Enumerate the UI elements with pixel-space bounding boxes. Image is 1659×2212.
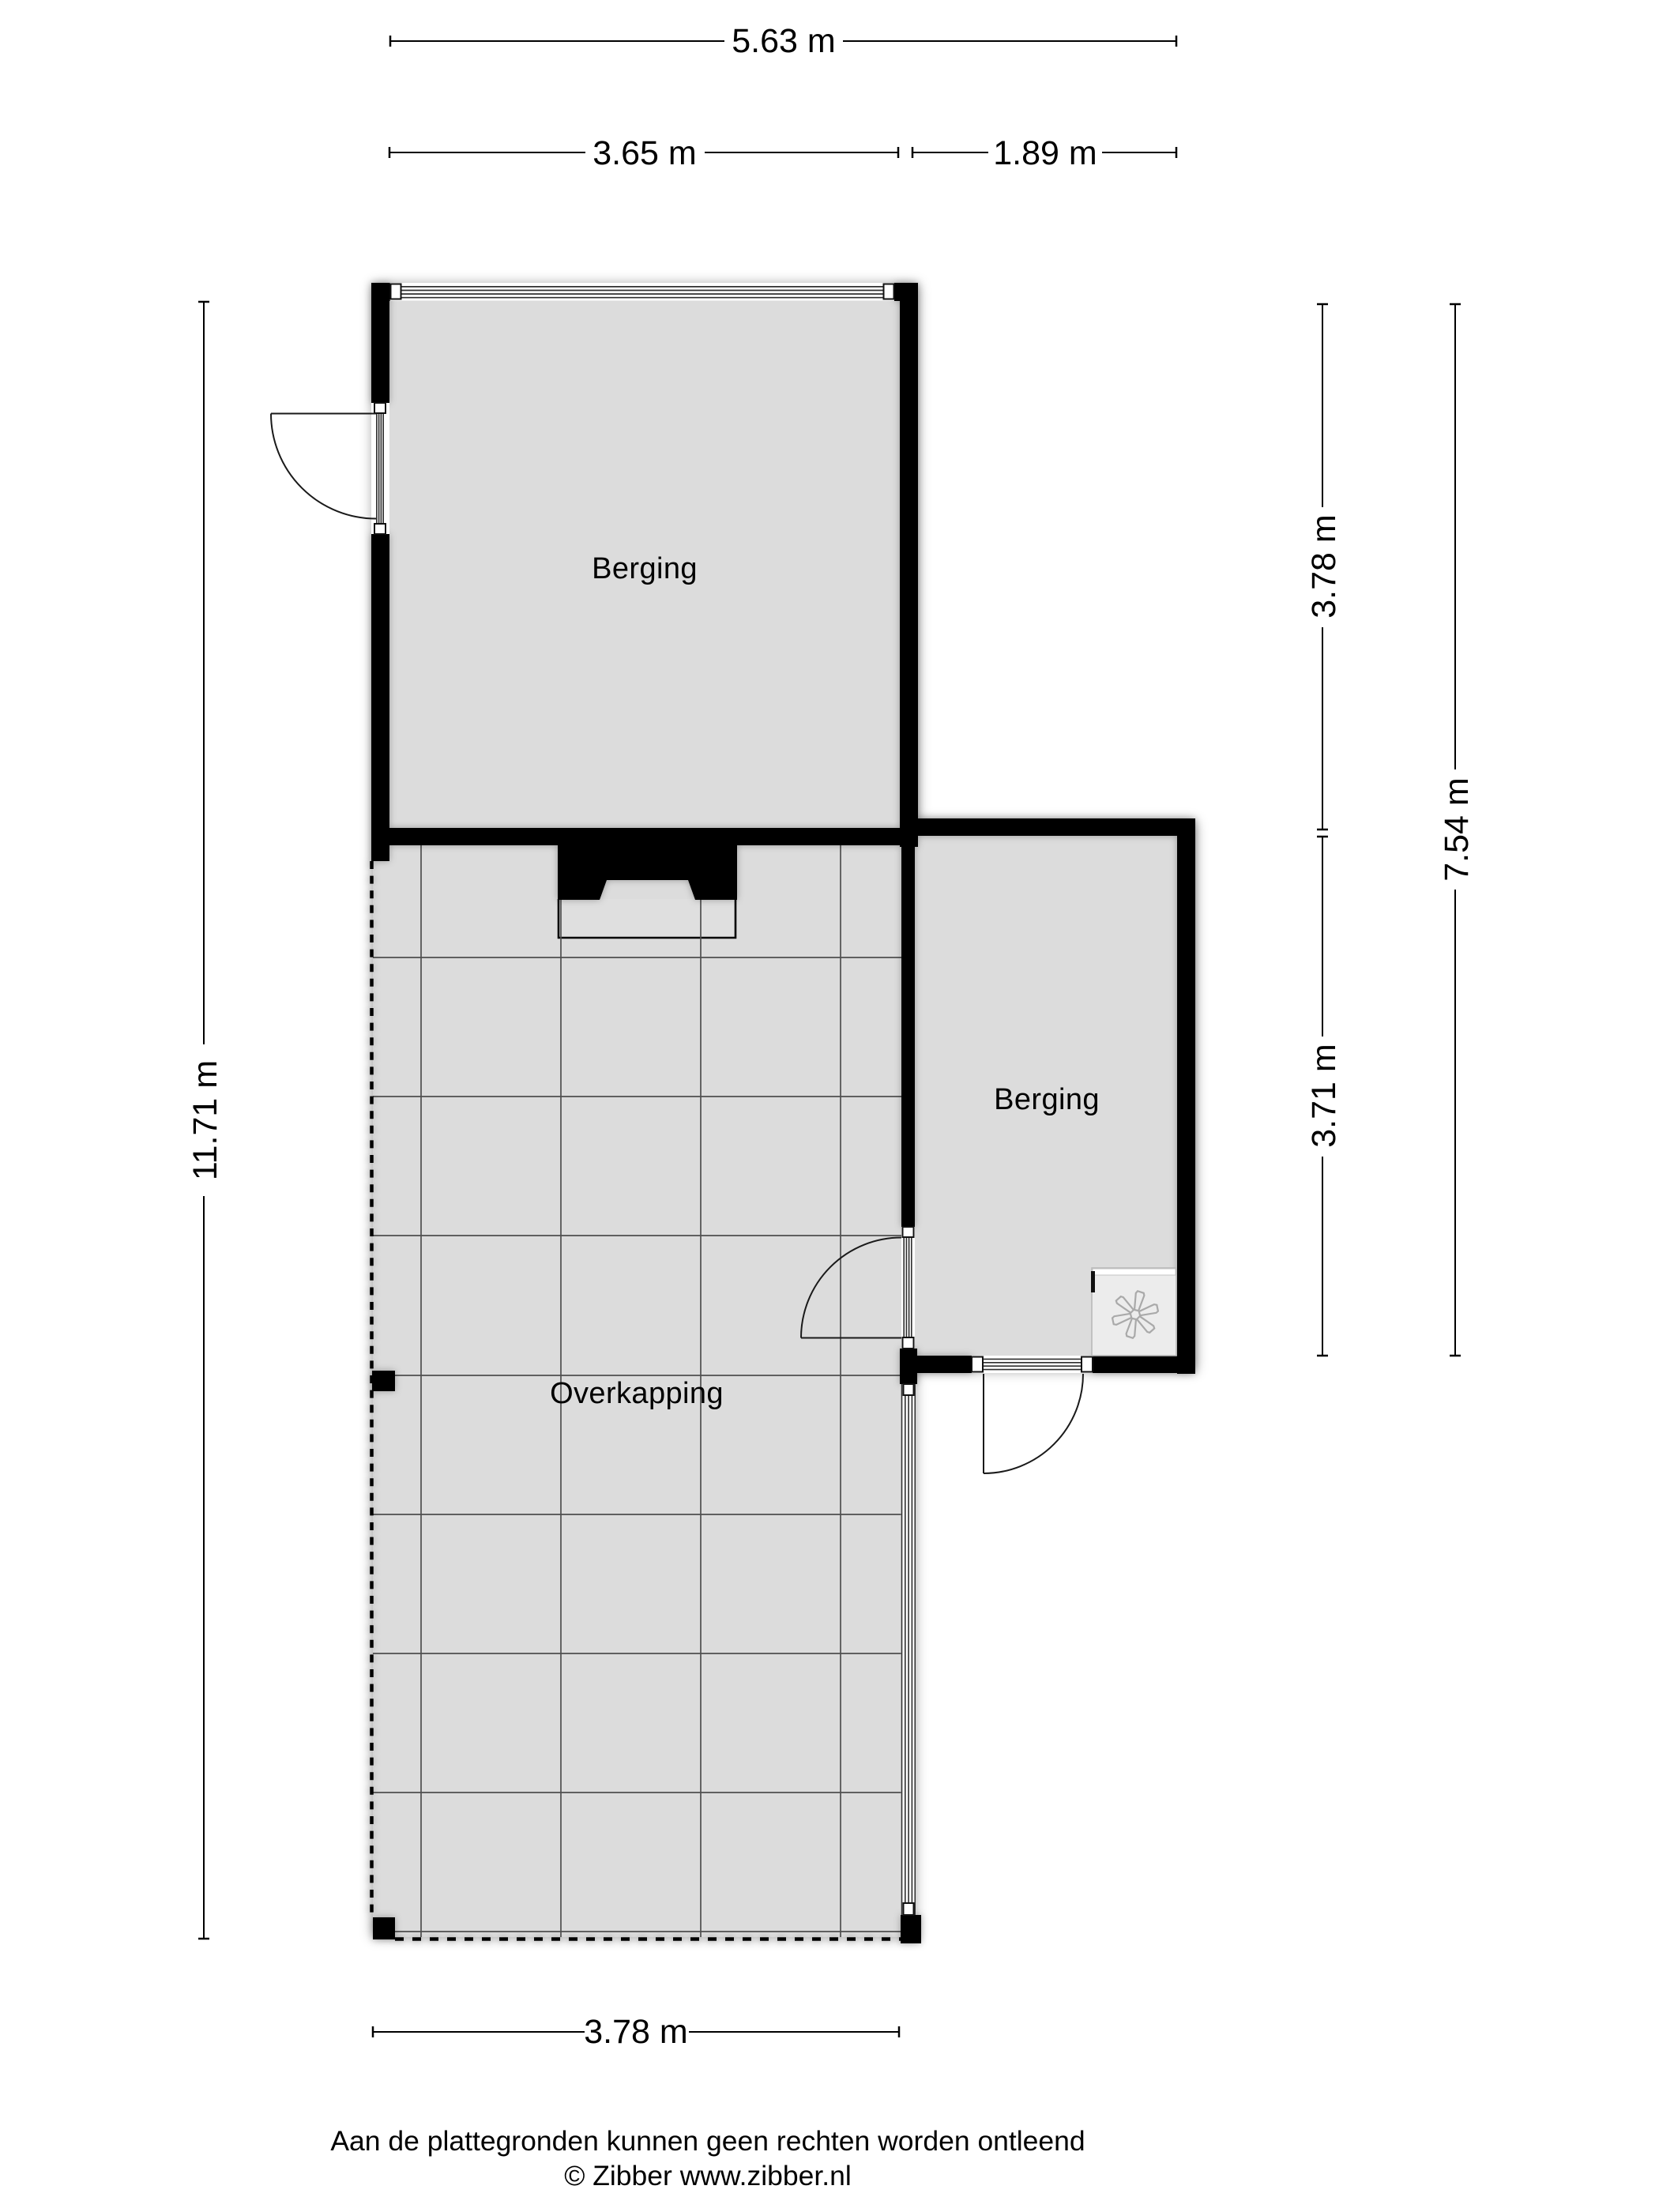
svg-text:3.71 m: 3.71 m (1305, 1044, 1343, 1147)
svg-text:3.78 m: 3.78 m (1305, 514, 1343, 618)
svg-text:Overkapping: Overkapping (550, 1377, 724, 1410)
svg-text:© Zibber www.zibber.nl: © Zibber www.zibber.nl (564, 2160, 852, 2191)
svg-text:Aan de plattegronden kunnen ge: Aan de plattegronden kunnen geen rechten… (330, 2125, 1085, 2157)
svg-text:11.71 m: 11.71 m (186, 1060, 224, 1180)
svg-text:7.54 m: 7.54 m (1438, 777, 1476, 881)
svg-text:3.78 m: 3.78 m (584, 2013, 687, 2051)
svg-text:3.65 m: 3.65 m (592, 134, 696, 172)
svg-text:Berging: Berging (994, 1083, 1100, 1116)
svg-text:5.63 m: 5.63 m (732, 22, 835, 60)
svg-text:1.89 m: 1.89 m (993, 134, 1097, 172)
svg-text:Berging: Berging (592, 552, 698, 585)
